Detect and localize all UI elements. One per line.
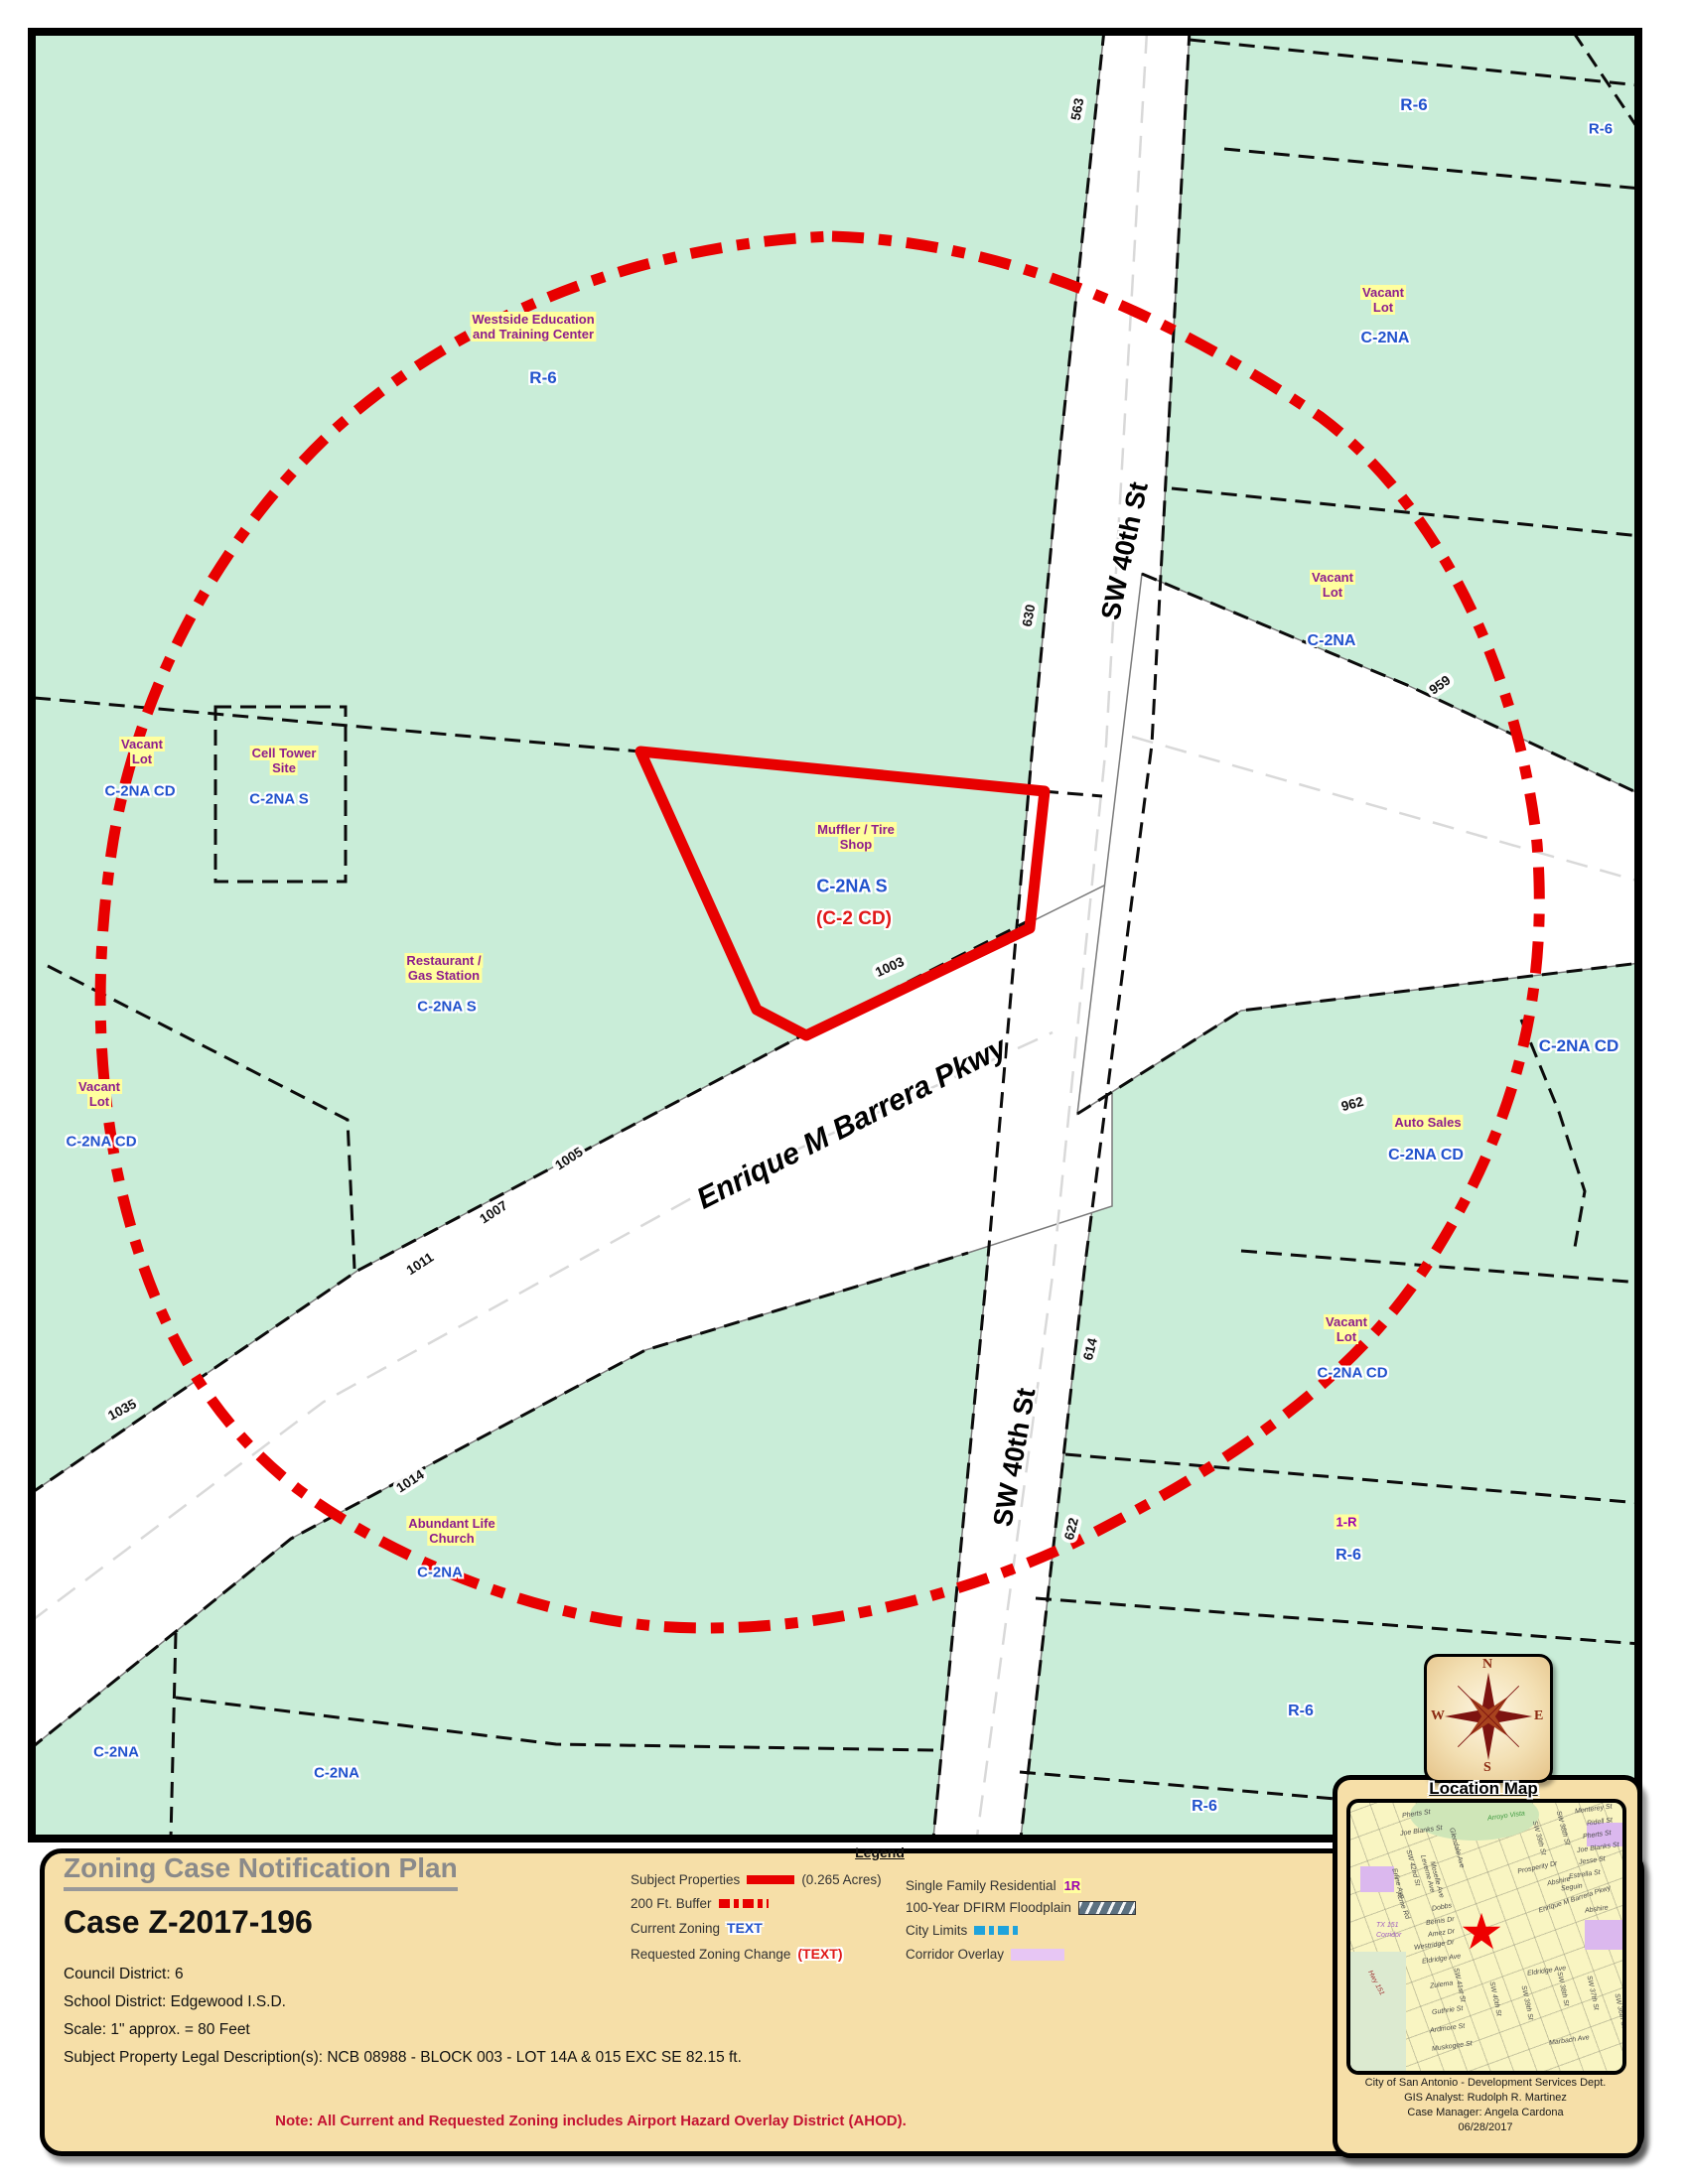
loc-street-29: SW 39th St [1520,1984,1534,2020]
site-label-abundant-life-church: Abundant LifeChurch [406,1516,496,1546]
site-label-text: Church [427,1531,477,1546]
loc-street-27: SW 41st St [1452,1968,1466,2003]
legend-item-right-1: 100-Year DFIRM Floodplain [906,1900,1136,1915]
zone-label-c2na-sw2-0: C-2NA [314,1765,359,1782]
legend-swatch-subject [747,1875,794,1884]
zone-label-vacant-lot-w-lower-0: C-2NA CD [66,1134,136,1151]
site-label-text: Lot [1321,585,1344,600]
site-label-line: Abundant Life [406,1516,496,1531]
greenbelt-patch [1346,1952,1406,2075]
site-label-text: Restaurant / [404,953,483,968]
zone-label-one-r-0: 1-R [1335,1515,1359,1530]
legend-item-right-2: City Limits [906,1923,1022,1938]
compass-w: W [1431,1708,1445,1724]
site-label-line: Vacant [1324,1314,1369,1329]
site-label-text: Vacant [119,737,165,751]
loc-street-19: Abshire [1585,1904,1609,1914]
zone-label-vacant-lot-ne-0: C-2NA [1361,330,1410,347]
legend-item-right-3: Corridor Overlay [906,1947,1064,1962]
site-label-line: Lot [76,1094,122,1109]
legend-label: Corridor Overlay [906,1947,1004,1962]
school-patch-1 [1585,1920,1626,1950]
site-label-vacant-lot-ne: VacantLot [1360,285,1406,315]
ahod-note: Note: All Current and Requested Zoning i… [238,2113,943,2129]
site-label-line: and Training Center [470,327,596,341]
legend-item-left-0: Subject Properties(0.265 Acres) [631,1872,882,1887]
site-label-westside-education: Westside Educationand Training Center [470,312,596,341]
zone-label-westside-education-0: R-6 [529,368,556,388]
legend-label: 100-Year DFIRM Floodplain [906,1900,1071,1915]
zone-label-vacant-lot-se-0: C-2NA CD [1317,1365,1387,1382]
legend-swatch-buffer [719,1899,769,1908]
site-label-cell-tower-site: Cell TowerSite [250,746,319,775]
site-label-text: Gas Station [406,968,482,983]
loc-street-37: Marbach Ave [1549,2034,1590,2047]
site-label-line: Vacant [1360,285,1406,300]
zone-label-r6-corner-0: R-6 [1589,121,1613,138]
zone-label-auto-sales-0: C-2NA CD [1388,1147,1464,1164]
legend-value: (TEXT) [797,1946,842,1962]
loc-street-23: Amez Dr [1428,1928,1456,1939]
page-title: Zoning Case Notification Plan [64,1852,458,1891]
zone-label-r6-se2-0: R-6 [1192,1798,1217,1816]
site-label-text: Westside Education [470,312,596,327]
road-barrera-east [1077,574,1640,1114]
site-label-line: Church [406,1531,496,1546]
credit-case-manager: Case Manager: Angela Cardona [1342,2107,1628,2118]
legend-item-left-2: Current ZoningTEXT [631,1920,763,1936]
site-label-line: Lot [1324,1329,1369,1344]
legend-label: Subject Properties [631,1872,740,1887]
site-label-line: Site [250,760,319,775]
legend-label: Single Family Residential [906,1878,1056,1893]
loc-street-34: Guthrie St [1432,2005,1464,2016]
site-label-vacant-lot-w-upper: VacantLot [119,737,165,766]
council-district: Council District: 6 [64,1966,184,1983]
zone-label-cell-tower-site-0: C-2NA S [249,791,308,808]
loc-street-22: Bemis Dr [1426,1916,1455,1927]
legend-item-left-3: Requested Zoning Change(TEXT) [631,1946,842,1962]
site-label-line: Restaurant / [404,953,483,968]
site-label-vacant-lot-se: VacantLot [1324,1314,1369,1344]
legend-label: 200 Ft. Buffer [631,1896,712,1911]
loc-street-12: SW 42nd St [1404,1849,1420,1887]
legend-value: 1R [1063,1878,1082,1893]
loc-street-39: Corridor [1376,1932,1401,1939]
site-label-line: Lot [1310,585,1355,600]
zone-label-muffler-tire-shop-1: (C-2 CD) [816,908,892,930]
site-label-text: Site [270,760,298,775]
compass-n: N [1482,1657,1492,1673]
park-patch [1410,1799,1539,1841]
school-district: School District: Edgewood I.S.D. [64,1993,286,2011]
zone-label-restaurant-gas-0: C-2NA S [417,999,476,1016]
compass-rose: N E S W [1424,1654,1553,1783]
legend-value: TEXT [727,1920,763,1936]
loc-street-16: Prosperity Dr [1517,1860,1558,1875]
zone-label-vacant-lot-w-upper-0: C-2NA CD [104,783,175,800]
credit-date: 06/28/2017 [1342,2121,1628,2133]
loc-street-28: SW 40th St [1488,1980,1502,2016]
loc-street-30: SW 38th St [1556,1971,1570,2006]
site-label-vacant-lot-w-lower: VacantLot [76,1079,122,1109]
compass-star-icon [1441,1669,1536,1764]
loc-street-33: Zulema [1430,1979,1454,1989]
location-street-map: ★ Pherts StJoe Blanks StMonterey StRidel… [1346,1799,1626,2075]
site-label-line: Lot [1360,300,1406,315]
site-label-text: Vacant [1324,1314,1369,1329]
legend-label: City Limits [906,1923,967,1938]
zone-label-r6-ne-0: R-6 [1400,95,1427,115]
site-label-auto-sales: Auto Sales [1392,1115,1463,1130]
site-label-line: Vacant [119,737,165,751]
zoning-map: Westside Educationand Training CenterR-6… [28,28,1642,1843]
loc-street-21: Dobbs [1432,1902,1453,1912]
location-map-title: Location Map [1354,1779,1613,1799]
zone-label-vacant-lot-e-0: C-2NA [1308,632,1356,650]
site-label-text: Auto Sales [1392,1115,1463,1130]
zone-label-one-r-1: R-6 [1336,1547,1361,1565]
site-label-line: Vacant [76,1079,122,1094]
compass-e: E [1534,1708,1543,1724]
loc-street-25: Eldridge Ave [1422,1953,1462,1965]
credit-gis-analyst: GIS Analyst: Rudolph R. Martinez [1342,2092,1628,2104]
site-label-line: Westside Education [470,312,596,327]
site-label-line: Cell Tower [250,746,319,760]
site-label-text: Lot [1371,300,1395,315]
loc-street-6: Jesse St [1579,1855,1607,1866]
loc-street-38: TX 151 [1376,1922,1399,1929]
site-label-text: Shop [838,837,875,852]
site-label-line: Vacant [1310,570,1355,585]
loc-street-2: Monterey St [1575,1803,1613,1815]
loc-street-24: Westridge Dr [1414,1939,1455,1952]
subject-location-star-icon: ★ [1460,1907,1504,1957]
loc-street-35: Ardmore St [1430,2023,1466,2035]
site-label-text: Vacant [1360,285,1406,300]
credit-dept: City of San Antonio - Development Servic… [1342,2077,1628,2089]
site-label-line: Auto Sales [1392,1115,1463,1130]
scale: Scale: 1" approx. = 80 Feet [64,2021,250,2039]
loc-street-10: SW 39th St [1531,1820,1547,1855]
legend-label: Current Zoning [631,1921,720,1936]
loc-street-9: SW 38th St [1555,1810,1571,1845]
site-label-line: Gas Station [404,968,483,983]
site-label-text: Muffler / Tire [815,822,897,837]
legend-title: Legend [794,1844,965,1860]
legend-item-left-1: 200 Ft. Buffer [631,1896,769,1911]
site-label-line: Shop [815,837,897,852]
site-label-restaurant-gas: Restaurant /Gas Station [404,953,483,983]
legend-suffix: (0.265 Acres) [801,1872,881,1887]
site-label-text: Lot [1335,1329,1358,1344]
site-label-vacant-lot-e: VacantLot [1310,570,1355,600]
zone-label-c2nacd-ne-0: C-2NA CD [1539,1036,1619,1056]
legal-description: Subject Property Legal Description(s): N… [64,2049,742,2067]
site-label-text: and Training Center [471,327,596,341]
zone-label-abundant-life-church-0: C-2NA [417,1565,463,1581]
loc-street-8: Seguin [1561,1883,1584,1893]
loc-street-32: SW 36th St [1614,1992,1626,2028]
school-patch-2 [1360,1866,1394,1892]
legend-label: Requested Zoning Change [631,1947,790,1962]
site-label-line: Muffler / Tire [815,822,897,837]
compass-s: S [1483,1760,1491,1776]
zone-label-r6-se1-0: R-6 [1288,1703,1314,1720]
site-label-text: Cell Tower [250,746,319,760]
legend-swatch-citylimits [974,1926,1022,1935]
site-label-text: Lot [130,751,154,766]
site-label-muffler-tire-shop: Muffler / TireShop [815,822,897,852]
zone-label-muffler-tire-shop-0: C-2NA S [816,877,887,897]
loc-street-7: Estrella St [1569,1869,1602,1880]
legend-swatch-floodplain [1078,1901,1136,1915]
legend-swatch-corridor [1011,1949,1064,1961]
loc-street-20: Acme Rd [1394,1891,1410,1920]
loc-street-31: SW 37th St [1586,1975,1600,2010]
loc-street-36: Muskogee St [1432,2040,1473,2053]
case-number: Case Z-2017-196 [64,1904,313,1941]
legend-item-right-0: Single Family Residential1R [906,1878,1081,1893]
site-label-line: Lot [119,751,165,766]
site-label-text: Abundant Life [406,1516,496,1531]
site-label-text: Lot [87,1094,111,1109]
zone-label-c2na-sw1-0: C-2NA [93,1744,139,1761]
site-label-text: Vacant [1310,570,1355,585]
loc-street-5: Joe Blanks St [1577,1842,1619,1854]
site-label-text: Vacant [76,1079,122,1094]
